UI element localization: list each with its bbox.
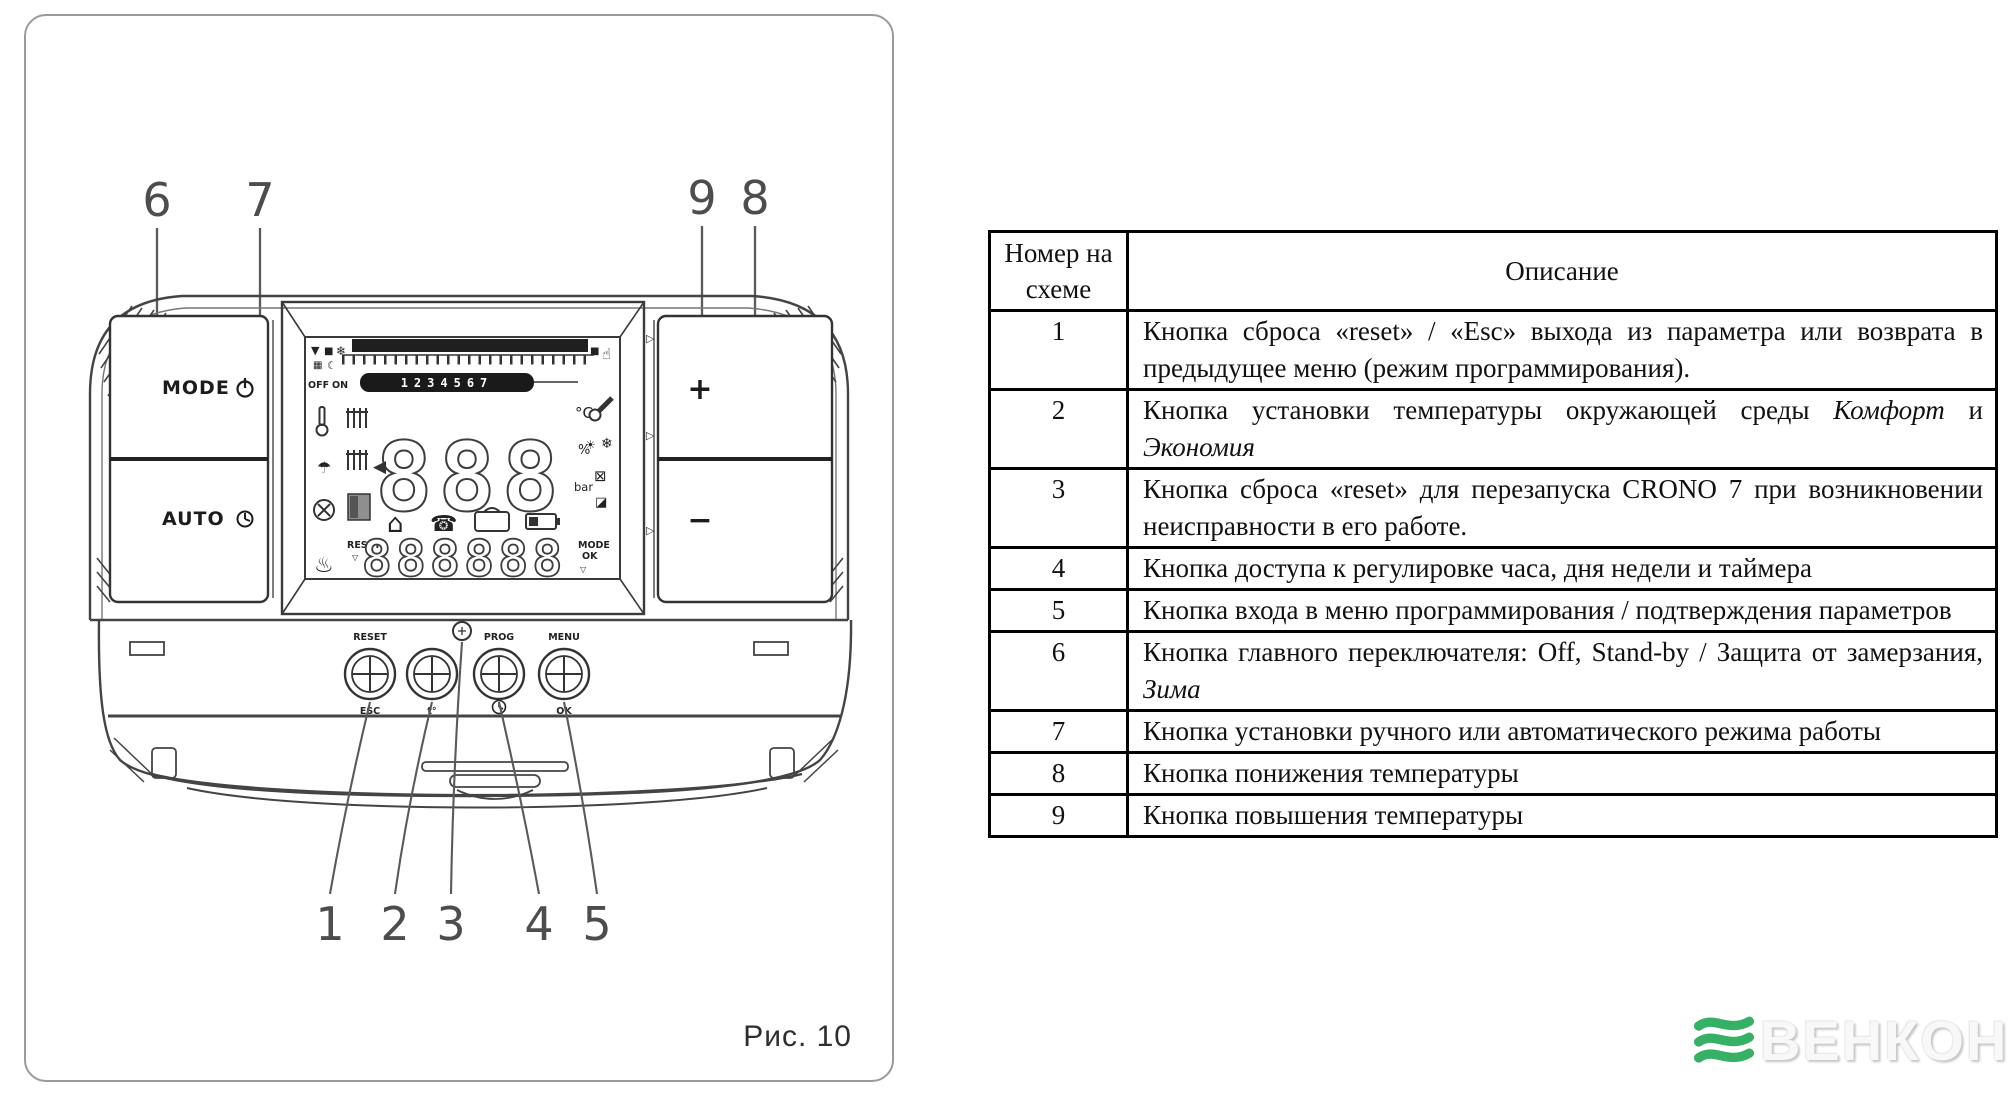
description-cell: Кнопка главного переключателя: Off, Stan… [1128, 632, 1997, 711]
pump-icon [314, 500, 334, 520]
sun-icon: ☀ [585, 438, 596, 452]
description-cell: Кнопка понижения температуры [1128, 753, 1997, 795]
table-row-2: 2Кнопка установки температуры окружающей… [990, 390, 1997, 469]
reset-label: RESET [353, 632, 387, 643]
radiator-comfort-icon [346, 408, 368, 428]
lcd-mode-label: MODE [578, 540, 610, 551]
temperature-set-button [407, 649, 457, 699]
heat-icon: ♨ [314, 553, 334, 578]
figure-10-panel: 6 7 9 8 [24, 14, 894, 1082]
figure-caption: Рис. 10 [743, 1020, 852, 1054]
description-cell: Кнопка установки температуры окружающей … [1128, 390, 1997, 469]
snowflake-icon: ❄ [336, 344, 346, 358]
scheme-number: 3 [990, 469, 1128, 548]
callout-3: 3 [436, 897, 465, 951]
bottom-callouts: 1 2 3 4 5 [315, 897, 611, 951]
callout-5: 5 [582, 897, 611, 951]
plus-button-label: + [687, 372, 712, 407]
wrench-icon [590, 398, 613, 421]
hand-icon: ☝ [602, 345, 611, 363]
callout-4: 4 [524, 897, 553, 951]
marker-right-icon: ▷ [646, 332, 655, 345]
scheme-number: 1 [990, 311, 1128, 390]
right-button-block: + − [654, 316, 832, 602]
lcd-screen: ▼ ■ ❄ ▦ ☾ ■ ☝ OFF ON 1234567 888 [308, 339, 613, 588]
program-timeline-bar [352, 339, 588, 352]
lower-body-outline [99, 620, 851, 808]
bracket-square-icon: ■ [590, 346, 599, 357]
menu-label: MENU [548, 632, 580, 643]
table-row-3: 3Кнопка сброса «reset» для перезапуска C… [990, 469, 1997, 548]
description-cell: Кнопка повышения температуры [1128, 795, 1997, 837]
description-cell: Кнопка установки ручного или автоматичес… [1128, 711, 1997, 753]
minus-button-label: − [687, 503, 712, 538]
callout-7: 7 [245, 173, 274, 227]
callout-2: 2 [380, 897, 409, 951]
table-row-7: 7Кнопка установки ручного или автоматиче… [990, 711, 1997, 753]
venkon-logo: ВЕНКОН [1694, 1008, 2008, 1073]
off-label: OFF [308, 380, 329, 391]
mode-marker-icon: ▽ [580, 565, 587, 574]
left-button-block: MODE AUTO [110, 316, 273, 602]
hatch-body-left [110, 738, 156, 782]
scheme-number: 4 [990, 548, 1128, 590]
table-row-5: 5Кнопка входа в меню программирования / … [990, 590, 1997, 632]
left-latch [130, 642, 164, 655]
reset-esc-button [345, 649, 395, 699]
scheme-number: 8 [990, 753, 1128, 795]
scheme-number: 9 [990, 795, 1128, 837]
description-table: Номер на схеме Описание 1Кнопка сброса «… [988, 230, 1998, 838]
bar-unit: bar [574, 480, 593, 494]
table-header-row: Номер на схеме Описание [990, 232, 1997, 311]
on-label: ON [332, 380, 348, 391]
logo-text: ВЕНКОН [1760, 1008, 2008, 1073]
days-digits: 1234567 [401, 376, 494, 390]
frost-snowflake-icon: ❄ [601, 436, 613, 452]
radiator-economy-icon [346, 450, 368, 470]
clock-set-button [474, 649, 524, 699]
description-cell: Кнопка входа в меню программирования / п… [1128, 590, 1997, 632]
table-row-1: 1Кнопка сброса «reset» / «Esc» выхода из… [990, 311, 1997, 390]
shower-icon: ☂ [317, 458, 331, 477]
grid-icon: ▦ [313, 360, 322, 371]
scheme-number: 2 [990, 390, 1128, 469]
program-digits: 888888 [362, 530, 567, 588]
callout-1: 1 [315, 897, 344, 951]
thermometer-icon [317, 407, 328, 436]
table-header-number: Номер на схеме [990, 232, 1128, 311]
scheme-number: 6 [990, 632, 1128, 711]
main-temperature-digits: 888 [375, 423, 565, 533]
reset-marker-icon: ▽ [352, 553, 359, 562]
mode-button-label: MODE [162, 377, 230, 399]
table-row-4: 4Кнопка доступа к регулировке часа, дня … [990, 548, 1997, 590]
left-bottom-clip [152, 748, 176, 778]
triangle-down-icon: ▼ [311, 344, 320, 357]
table-row-8: 8Кнопка понижения температуры [990, 753, 1997, 795]
esc-label: ESC [360, 706, 380, 717]
scheme-number: 7 [990, 711, 1128, 753]
table-header-description: Описание [1128, 232, 1997, 311]
description-cell: Кнопка сброса «reset» для перезапуска CR… [1128, 469, 1997, 548]
table-row-9: 9Кнопка повышения температуры [990, 795, 1997, 837]
device-diagram: 6 7 9 8 [26, 16, 892, 1080]
square-icon: ■ [324, 346, 333, 357]
callout-8: 8 [740, 171, 769, 225]
right-latch [754, 642, 788, 655]
scheme-number: 5 [990, 590, 1128, 632]
logo-waves-icon [1694, 1010, 1754, 1072]
hardware-reset-hole [453, 622, 471, 640]
callout-9: 9 [687, 171, 716, 225]
lcd-ok-label: OK [582, 551, 598, 562]
menu-ok-button [539, 649, 589, 699]
half-square-icon: ◪ [595, 495, 607, 510]
box-x-icon: ⊠ [594, 467, 607, 485]
description-cell: Кнопка сброса «reset» / «Esc» выхода из … [1128, 311, 1997, 390]
arrow-left-icon: ◀ [373, 457, 387, 477]
moon-icon: ☾ [327, 359, 337, 372]
auto-button-label: AUTO [162, 508, 225, 530]
description-cell: Кнопка доступа к регулировке часа, дня н… [1128, 548, 1997, 590]
table-row-6: 6Кнопка главного переключателя: Off, Sta… [990, 632, 1997, 711]
segment-block-icon [348, 494, 370, 520]
callout-6: 6 [142, 173, 171, 227]
marker-right-icon: ▷ [646, 524, 655, 537]
manual-page: 6 7 9 8 [0, 0, 2009, 1106]
marker-right-icon: ▷ [646, 429, 655, 442]
prog-label: PROG [484, 632, 514, 643]
